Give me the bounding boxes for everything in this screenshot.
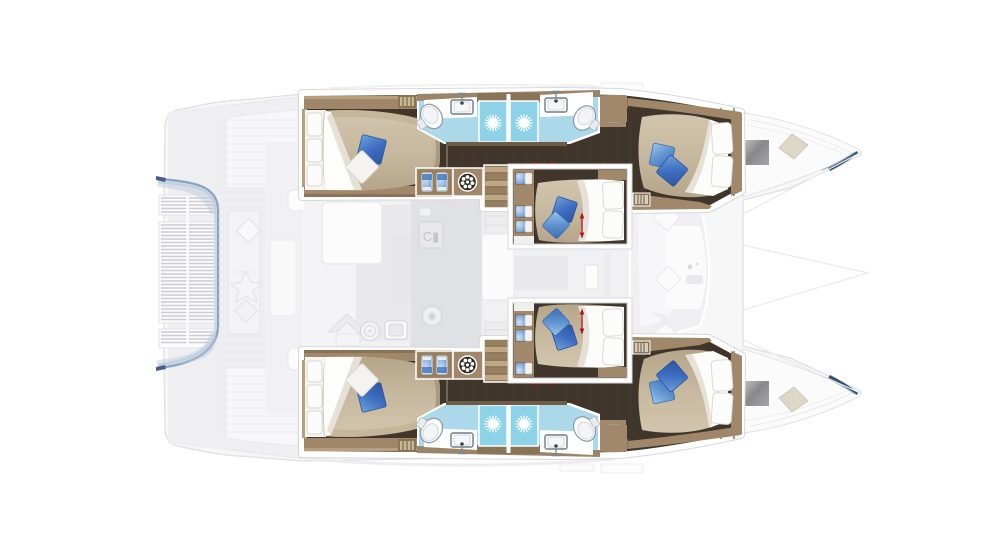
- svg-text:C▮: C▮: [423, 229, 440, 244]
- svg-text:❋: ❋: [427, 312, 436, 324]
